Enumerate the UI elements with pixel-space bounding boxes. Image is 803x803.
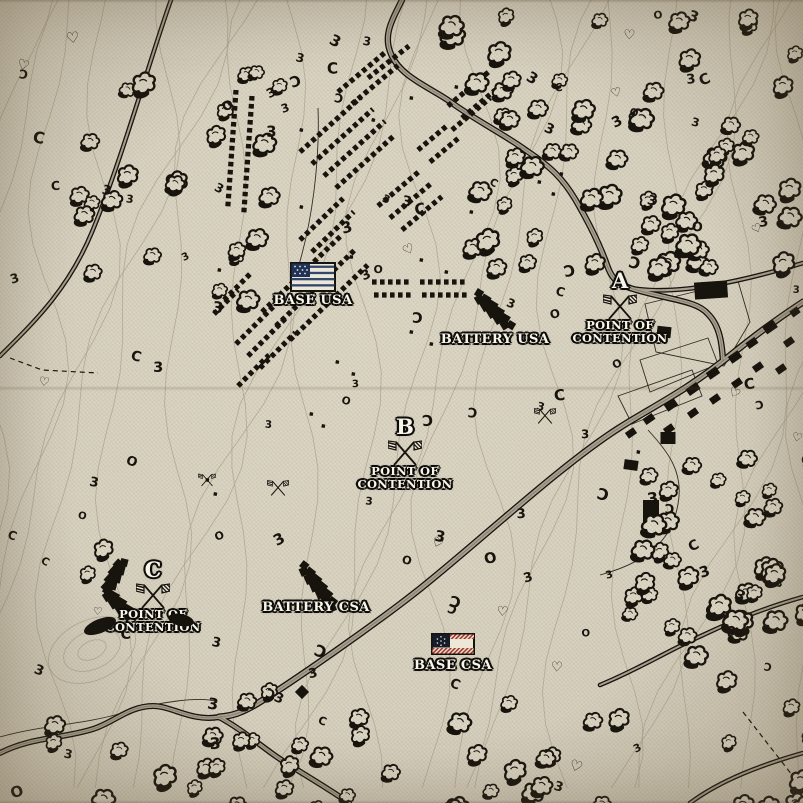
svg-text:Ɔ: Ɔ bbox=[412, 311, 423, 327]
marker-base-csa[interactable]: BASE CSA bbox=[378, 633, 528, 673]
usa-flag-icon bbox=[238, 262, 388, 292]
svg-text:Ɔ: Ɔ bbox=[665, 503, 675, 518]
svg-text:3: 3 bbox=[505, 295, 518, 311]
svg-text:C: C bbox=[554, 81, 563, 95]
svg-text:3: 3 bbox=[380, 192, 392, 207]
contention-label-line2: CONTENTION bbox=[78, 621, 228, 634]
svg-text:3: 3 bbox=[542, 120, 557, 139]
battery-csa-label: BATTERY CSA bbox=[241, 601, 391, 615]
svg-text:♡: ♡ bbox=[65, 28, 81, 48]
marker-point-of-contention-a[interactable]: A POINT OF CONTENTION bbox=[545, 270, 695, 346]
svg-text:♡: ♡ bbox=[551, 659, 564, 675]
svg-text:O: O bbox=[400, 552, 413, 568]
svg-text:C: C bbox=[553, 386, 566, 405]
svg-text:O: O bbox=[8, 781, 26, 802]
svg-text:3: 3 bbox=[153, 359, 163, 376]
contention-letter: A bbox=[545, 270, 695, 292]
svg-text:Ɔ: Ɔ bbox=[19, 67, 29, 82]
svg-text:3: 3 bbox=[209, 733, 221, 753]
svg-text:3: 3 bbox=[362, 34, 372, 49]
svg-text:3: 3 bbox=[686, 7, 701, 26]
svg-text:Ɔ: Ɔ bbox=[755, 398, 765, 412]
svg-text:3: 3 bbox=[339, 218, 354, 238]
contention-label-line2: CONTENTION bbox=[330, 478, 480, 491]
svg-text:3: 3 bbox=[307, 666, 319, 682]
svg-text:3: 3 bbox=[206, 695, 220, 715]
marker-point-of-contention-b[interactable]: B POINT OF CONTENTION bbox=[330, 416, 480, 492]
svg-text:3: 3 bbox=[270, 529, 288, 550]
svg-text:3: 3 bbox=[690, 114, 701, 129]
svg-text:O: O bbox=[581, 628, 591, 640]
svg-text:3: 3 bbox=[63, 746, 74, 761]
svg-text:O: O bbox=[77, 510, 88, 523]
marker-battery-csa[interactable]: BATTERY CSA bbox=[241, 599, 391, 615]
svg-text:3: 3 bbox=[32, 662, 46, 680]
svg-text:O: O bbox=[610, 356, 624, 372]
battle-map[interactable]: 3O33ƆCOCOO♡O33♡O3C♡333OOC3ƆƆ3CƆ33O3C333Ɔ… bbox=[0, 0, 803, 803]
svg-text:3: 3 bbox=[552, 779, 565, 796]
svg-text:O: O bbox=[482, 549, 498, 568]
bush-symbols: 3O33ƆCOCOO♡O33♡O3C♡333OOC3ƆƆ3CƆ33O3C333Ɔ… bbox=[6, 7, 803, 802]
contention-letter: B bbox=[330, 416, 480, 438]
svg-text:3: 3 bbox=[8, 270, 21, 287]
svg-text:♡: ♡ bbox=[725, 384, 742, 403]
svg-text:Ɔ: Ɔ bbox=[288, 72, 304, 92]
svg-text:3: 3 bbox=[125, 192, 134, 206]
map-canvas: 3O33ƆCOCOO♡O33♡O3C♡333OOC3ƆƆ3CƆ33O3C333Ɔ… bbox=[0, 0, 803, 803]
svg-text:3: 3 bbox=[88, 475, 100, 491]
svg-text:♡: ♡ bbox=[609, 84, 623, 100]
svg-text:♡: ♡ bbox=[790, 429, 803, 445]
svg-text:O: O bbox=[691, 220, 703, 236]
svg-text:O: O bbox=[340, 394, 352, 408]
forest-tree-symbols bbox=[44, 6, 803, 803]
svg-text:♡: ♡ bbox=[623, 28, 636, 44]
base-usa-label: BASE USA bbox=[238, 294, 388, 308]
crossed-flags-icon bbox=[545, 293, 695, 319]
svg-text:♡: ♡ bbox=[567, 756, 585, 776]
svg-text:3: 3 bbox=[523, 68, 541, 89]
svg-text:O: O bbox=[221, 98, 234, 114]
svg-text:3: 3 bbox=[581, 427, 589, 441]
svg-text:3: 3 bbox=[266, 123, 277, 141]
svg-text:O: O bbox=[653, 9, 663, 22]
svg-text:3: 3 bbox=[352, 379, 360, 390]
svg-text:3: 3 bbox=[646, 488, 660, 508]
svg-text:Ɔ: Ɔ bbox=[595, 484, 611, 505]
svg-text:C: C bbox=[686, 537, 702, 556]
svg-text:3: 3 bbox=[365, 495, 373, 507]
contention-letter: C bbox=[78, 559, 228, 581]
csa-flag-icon bbox=[378, 633, 528, 657]
svg-text:3: 3 bbox=[326, 31, 344, 52]
crossed-flags-icon bbox=[330, 439, 480, 465]
svg-text:3: 3 bbox=[265, 419, 273, 431]
svg-text:3: 3 bbox=[516, 507, 526, 522]
svg-text:Ɔ: Ɔ bbox=[763, 660, 773, 674]
svg-text:C: C bbox=[129, 348, 143, 366]
svg-text:3: 3 bbox=[792, 285, 799, 296]
svg-text:3: 3 bbox=[686, 72, 697, 88]
svg-text:C: C bbox=[743, 375, 756, 393]
svg-text:♡: ♡ bbox=[38, 374, 51, 389]
svg-text:3: 3 bbox=[401, 193, 414, 211]
svg-text:O: O bbox=[124, 453, 140, 471]
crossed-flags-icon bbox=[78, 582, 228, 608]
svg-text:3: 3 bbox=[609, 113, 625, 132]
svg-text:♡: ♡ bbox=[496, 605, 508, 620]
svg-text:3: 3 bbox=[212, 180, 226, 196]
svg-text:3: 3 bbox=[210, 635, 222, 651]
svg-text:O: O bbox=[213, 528, 227, 544]
svg-text:3: 3 bbox=[522, 570, 535, 587]
svg-text:C: C bbox=[39, 554, 52, 569]
svg-text:♡: ♡ bbox=[429, 534, 445, 552]
svg-text:C: C bbox=[316, 714, 328, 729]
svg-text:C: C bbox=[696, 70, 713, 90]
svg-text:C: C bbox=[50, 178, 60, 194]
svg-text:C: C bbox=[31, 127, 46, 148]
svg-text:♡: ♡ bbox=[400, 241, 417, 260]
svg-text:3: 3 bbox=[279, 100, 291, 116]
svg-text:3: 3 bbox=[697, 562, 712, 581]
svg-text:Ɔ: Ɔ bbox=[448, 592, 463, 612]
marker-base-usa[interactable]: BASE USA bbox=[238, 262, 388, 308]
svg-text:3: 3 bbox=[211, 298, 224, 317]
svg-text:3: 3 bbox=[294, 50, 305, 66]
contention-label-line2: CONTENTION bbox=[545, 332, 695, 345]
marker-point-of-contention-c[interactable]: C POINT OF CONTENTION bbox=[78, 559, 228, 635]
svg-text:C: C bbox=[327, 59, 339, 77]
base-csa-label: BASE CSA bbox=[378, 659, 528, 673]
